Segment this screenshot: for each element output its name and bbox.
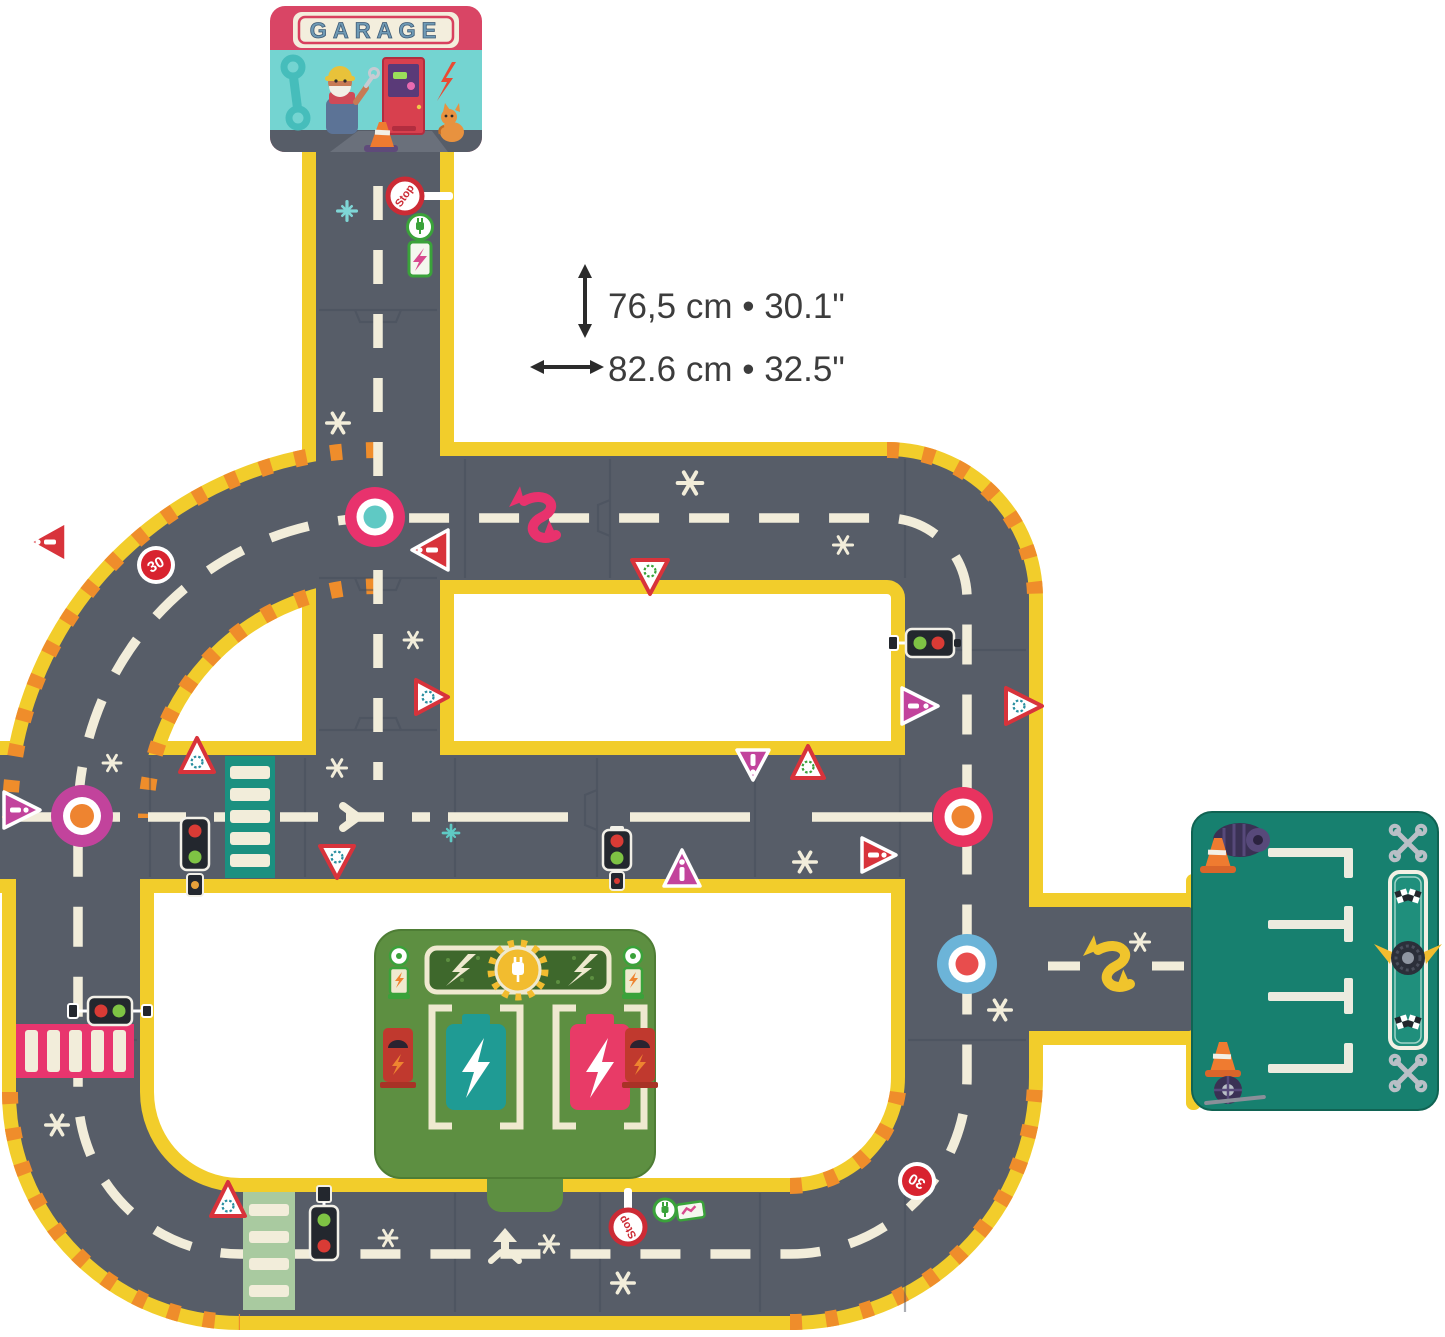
charger-post-icon [622,947,644,999]
roundabout-red-orange [933,787,993,847]
garage-door [383,58,424,134]
roundabout-magenta-orange [51,785,113,847]
fuel-pump-icon [622,1028,658,1088]
garage-sign-label: GARAGE [310,18,443,43]
garage-sign: GARAGE [293,12,459,48]
road-circuit-svg: Stop Stop 30 30 [0,0,1445,1337]
garage-building: GARAGE [270,6,482,152]
roundabout-pink-teal [345,487,405,547]
station-banner [427,943,609,997]
fuel-pump-icon [380,1028,416,1088]
charging-station [375,930,658,1212]
height-dimension-label: 76,5 cm • 30.1" [608,287,845,326]
charger-post-icon [388,947,410,999]
crosswalk-pink [16,1024,134,1078]
crosswalk-teal [225,756,275,878]
speed-30-sign-icon: 30 [137,546,175,584]
battery-icon [446,1014,506,1110]
crosswalk-light-green [243,1192,295,1310]
battery-icon [570,1014,630,1110]
width-dimension-label: 82.6 cm • 32.5" [608,350,845,389]
roundabout-blue-red [937,934,997,994]
ev-charge-sign-icon [408,215,433,277]
speed-30-sign-icon: 30 [898,1162,936,1200]
toy-road-puzzle-illustration: Stop Stop 30 30 [0,0,1445,1337]
background [0,0,1445,1337]
parking-lot-piece [1186,812,1442,1110]
